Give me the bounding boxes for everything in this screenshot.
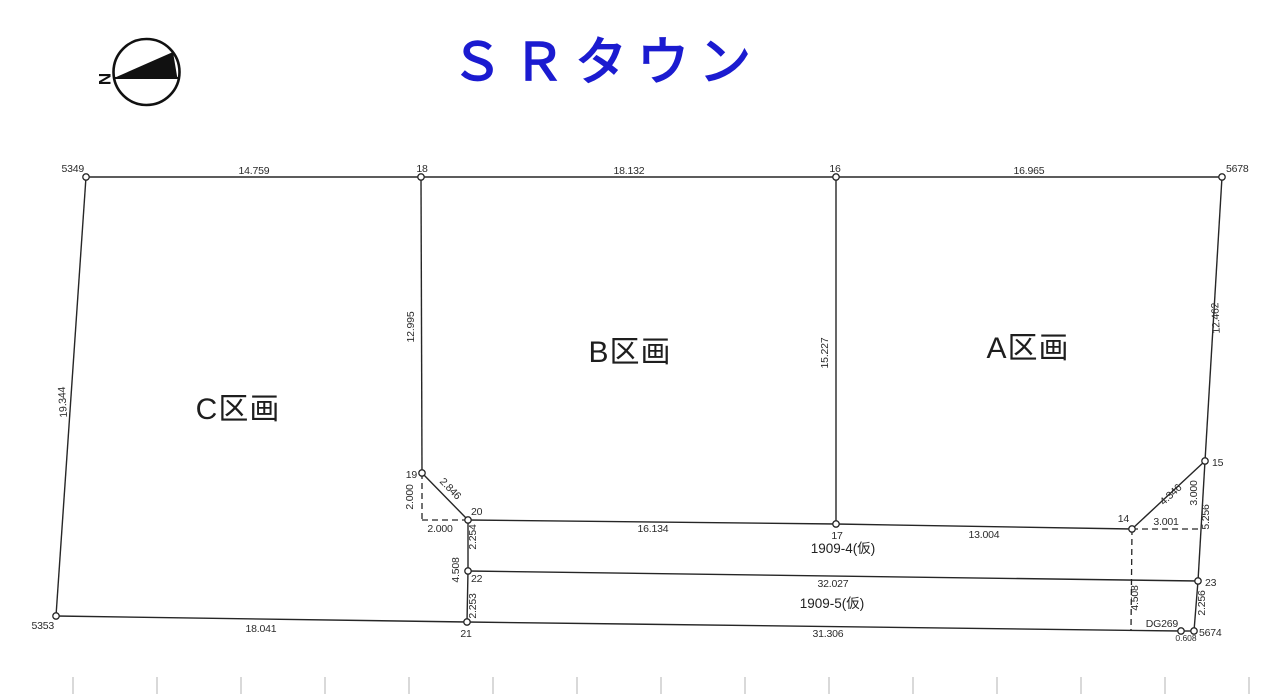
north-label: N	[95, 73, 114, 85]
point-label-23: 23	[1205, 577, 1217, 589]
measurement-19-offset-h: 2.000	[427, 523, 453, 535]
point-marker-23	[1195, 578, 1201, 584]
parcel-label-a: A区画	[986, 332, 1069, 365]
point-label-22: 22	[471, 573, 483, 585]
point-marker-17	[833, 521, 839, 527]
page-title: ＳＲタウン	[451, 34, 761, 92]
boundary-line	[56, 616, 467, 622]
point-marker-15	[1202, 458, 1208, 464]
north-arrow-icon	[114, 52, 178, 79]
point-label-19: 19	[406, 469, 418, 481]
point-marker-14	[1129, 526, 1135, 532]
measurement-18-19: 12.995	[405, 311, 417, 342]
measurement-20-17: 16.134	[638, 523, 669, 535]
parcel-labels: A区画 B区画 C区画	[196, 332, 1070, 426]
survey-plan-page: ＳＲタウン N	[0, 0, 1280, 694]
point-marker-5678	[1219, 174, 1225, 180]
measurement-14-offset-v: 4.508	[1129, 585, 1141, 611]
measurement-18-16: 18.132	[614, 165, 645, 177]
point-label-dg269: DG269	[1146, 618, 1179, 630]
lot-label-1909-4: 1909-4(仮)	[811, 541, 876, 556]
measurement-15-23: 5.256	[1200, 504, 1212, 530]
measurement-20-21-total: 4.508	[450, 557, 462, 583]
measurement-19-offset-v: 2.000	[404, 484, 416, 510]
point-label-15: 15	[1212, 457, 1224, 469]
point-marker-21	[464, 619, 470, 625]
parcel-label-c: C区画	[196, 393, 281, 426]
point-label-16: 16	[829, 163, 841, 175]
offset-dashed-line	[1131, 529, 1132, 630]
point-label-21: 21	[460, 628, 472, 640]
measurement-16-5678: 16.965	[1014, 165, 1045, 177]
measurement-15-offset-v: 3.000	[1188, 480, 1200, 506]
point-marker-19	[419, 470, 425, 476]
lot-label-1909-5: 1909-5(仮)	[800, 596, 865, 611]
measurement-22-21: 2.253	[467, 593, 479, 619]
measurement-dg269-5674: 0.608	[1175, 633, 1197, 643]
point-marker-5353	[53, 613, 59, 619]
point-label-18: 18	[416, 163, 428, 175]
measurement-5678-15: 12.462	[1209, 302, 1223, 334]
measurement-23-5674: 2.256	[1196, 590, 1208, 616]
measurement-14-15: 4.346	[1158, 482, 1185, 508]
measurement-17-14: 13.004	[969, 529, 1000, 541]
measurement-labels: 14.759 18.132 16.965 2.000 16.134 13.004…	[239, 165, 1197, 643]
north-compass: N	[95, 39, 179, 105]
point-label-5353: 5353	[31, 620, 54, 632]
scan-edge-ticks	[73, 677, 1249, 694]
measurement-5349-5353: 19.344	[56, 386, 70, 418]
measurement-19-20: 2.846	[437, 476, 464, 503]
survey-drawing: ＳＲタウン N	[0, 0, 1280, 694]
measurement-14-offset-h: 3.001	[1153, 516, 1179, 528]
point-label-14: 14	[1118, 513, 1130, 525]
point-label-20: 20	[471, 506, 483, 518]
parcel-divider-line	[421, 177, 422, 473]
measurement-5349-18: 14.759	[239, 165, 270, 177]
point-label-5674: 5674	[1199, 627, 1222, 639]
parcel-label-b: B区画	[588, 336, 671, 369]
measurement-20-22: 2.254	[467, 524, 479, 550]
measurement-21-5674: 31.306	[813, 628, 844, 640]
measurement-16-17: 15.227	[819, 337, 831, 368]
measurement-5353-21: 18.041	[246, 623, 277, 635]
point-label-5678: 5678	[1226, 163, 1249, 175]
point-label-5349: 5349	[61, 163, 84, 175]
measurement-22-23: 32.027	[818, 578, 849, 590]
